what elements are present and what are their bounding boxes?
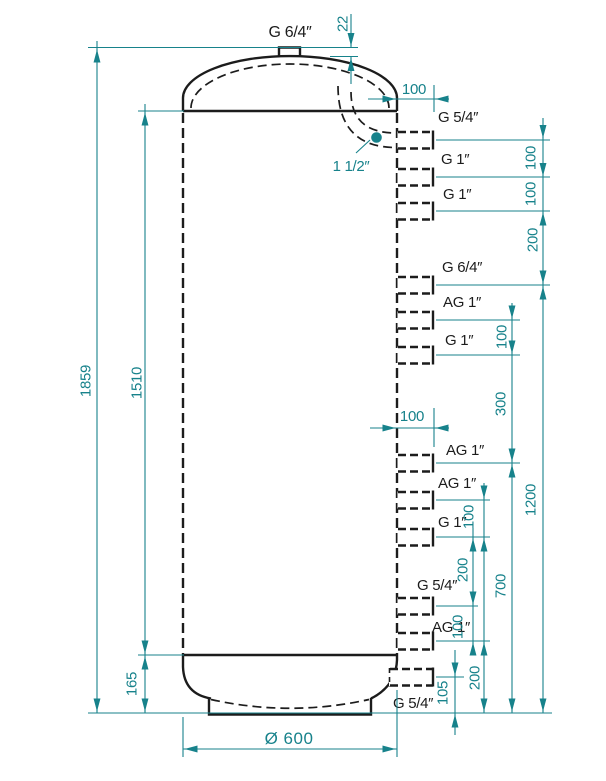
connection-label-5: AG 1″ — [443, 294, 482, 311]
svg-text:Ø 600: Ø 600 — [265, 729, 314, 748]
dim-nozzle-length-mid: 100 — [370, 408, 449, 428]
pipe-leader-line — [356, 140, 370, 153]
tank-dome-inner-dashed — [191, 64, 389, 108]
connection-label-7: AG 1″ — [446, 442, 485, 459]
connection-nozzle-5 — [398, 311, 434, 330]
svg-text:100: 100 — [494, 325, 511, 349]
connection-nozzle-8 — [398, 491, 434, 510]
dim-chain-middle-right: 100 300 700 — [493, 303, 513, 713]
svg-text:200: 200 — [525, 228, 542, 252]
connection-label-8: AG 1″ — [438, 475, 477, 492]
connection-label-1: G 5/4″ — [438, 109, 479, 126]
top-connection-label: G 6/4″ — [269, 24, 313, 41]
svg-text:200: 200 — [467, 666, 484, 690]
connection-nozzle-2 — [398, 168, 434, 187]
svg-text:1200: 1200 — [523, 484, 540, 516]
svg-text:100: 100 — [402, 81, 426, 98]
dim-body-height: 1510 165 — [124, 104, 146, 713]
drawing-canvas: 1 1/2″ — [0, 0, 606, 781]
svg-text:100: 100 — [523, 182, 540, 206]
svg-text:165: 165 — [124, 672, 141, 696]
top-nozzle — [279, 48, 300, 57]
tank-bottom-left-curve — [183, 655, 211, 699]
dim-chain-outer-right: 100 100 200 1200 — [523, 118, 544, 713]
connection-nozzle-10 — [398, 597, 434, 616]
connection-labels: G 6/4″ G 5/4″ G 1″ G 1″ G 6/4″ AG 1″ G 1… — [269, 24, 485, 712]
connection-nozzle-3 — [398, 202, 434, 221]
dim-diameter: Ø 600 — [183, 729, 397, 749]
connection-nozzle-9 — [398, 528, 434, 547]
connection-nozzle-1 — [398, 131, 434, 150]
connection-label-3: G 1″ — [443, 186, 472, 203]
connection-label-10: G 5/4″ — [417, 577, 458, 594]
svg-text:200: 200 — [455, 558, 472, 582]
connection-label-12: G 5/4″ — [393, 695, 434, 712]
svg-text:700: 700 — [493, 574, 510, 598]
svg-text:1510: 1510 — [129, 367, 146, 399]
dim-total-height: 1859 — [78, 41, 98, 713]
svg-text:300: 300 — [493, 392, 510, 416]
technical-drawing-buffer-tank: 1 1/2″ — [0, 0, 606, 781]
svg-text:100: 100 — [523, 146, 540, 170]
connection-label-4: G 6/4″ — [442, 259, 483, 276]
svg-text:1859: 1859 — [78, 365, 95, 397]
connection-label-2: G 1″ — [441, 151, 470, 168]
connection-nozzle-6 — [398, 346, 434, 365]
internal-pipe-outer-curve — [338, 86, 396, 148]
svg-text:100: 100 — [400, 408, 424, 425]
internal-pipe-inner-curve — [351, 92, 396, 133]
connection-nozzle-11 — [398, 632, 434, 651]
connection-label-6: G 1″ — [445, 332, 474, 349]
svg-text:22: 22 — [335, 16, 352, 32]
extension-lines — [88, 48, 552, 758]
svg-text:100: 100 — [461, 505, 478, 529]
pipe-marker-dot — [371, 132, 382, 143]
svg-text:100: 100 — [450, 615, 467, 639]
svg-text:105: 105 — [435, 681, 452, 705]
connection-nozzle-12 — [389, 668, 433, 687]
connection-nozzle-7 — [398, 454, 434, 473]
tank-outline — [183, 48, 397, 715]
connection-nozzle-4 — [398, 276, 434, 295]
tank-skirt-base — [209, 698, 371, 715]
tank-dish-bottom-dashed — [211, 700, 369, 709]
internal-pipe-label: 1 1/2″ — [333, 158, 371, 175]
